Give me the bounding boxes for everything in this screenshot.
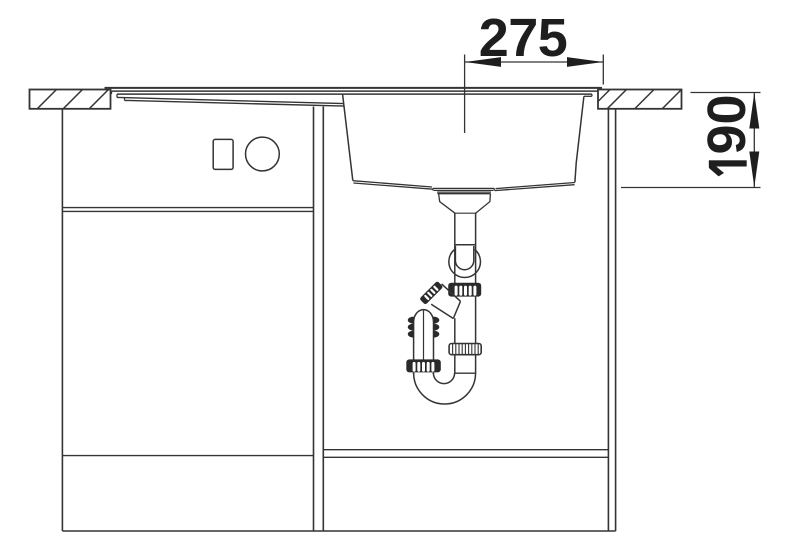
svg-text:275: 275 [479, 8, 568, 68]
svg-text:90: 90 [697, 94, 757, 154]
